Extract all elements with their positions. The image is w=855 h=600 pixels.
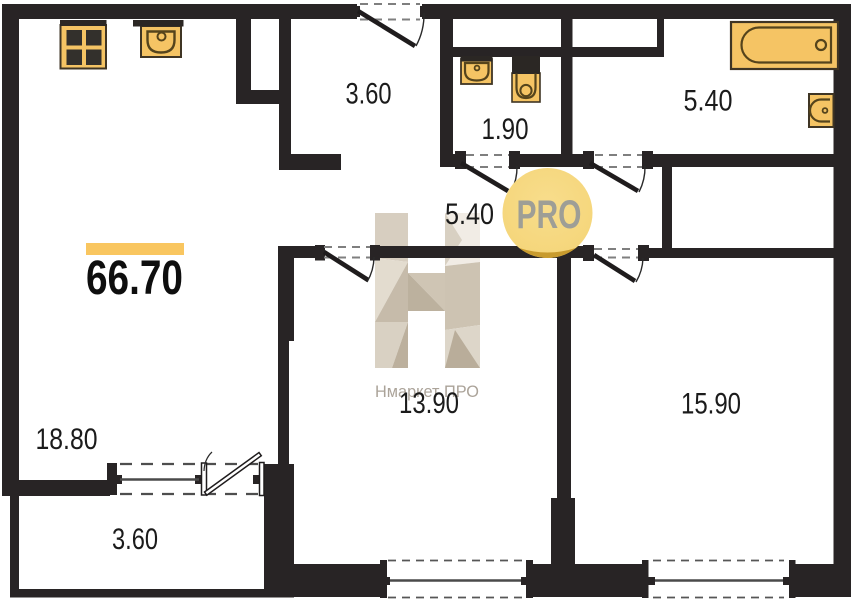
svg-text:3.60: 3.60 — [346, 78, 392, 111]
svg-text:5.40: 5.40 — [684, 85, 733, 118]
svg-text:PRO: PRO — [517, 193, 582, 237]
svg-text:15.90: 15.90 — [681, 388, 741, 421]
svg-text:66.70: 66.70 — [86, 252, 183, 305]
svg-text:13.90: 13.90 — [399, 387, 459, 420]
svg-text:1.90: 1.90 — [482, 113, 529, 146]
svg-text:18.80: 18.80 — [36, 423, 98, 456]
svg-text:3.60: 3.60 — [112, 523, 158, 556]
svg-text:5.40: 5.40 — [445, 198, 494, 231]
